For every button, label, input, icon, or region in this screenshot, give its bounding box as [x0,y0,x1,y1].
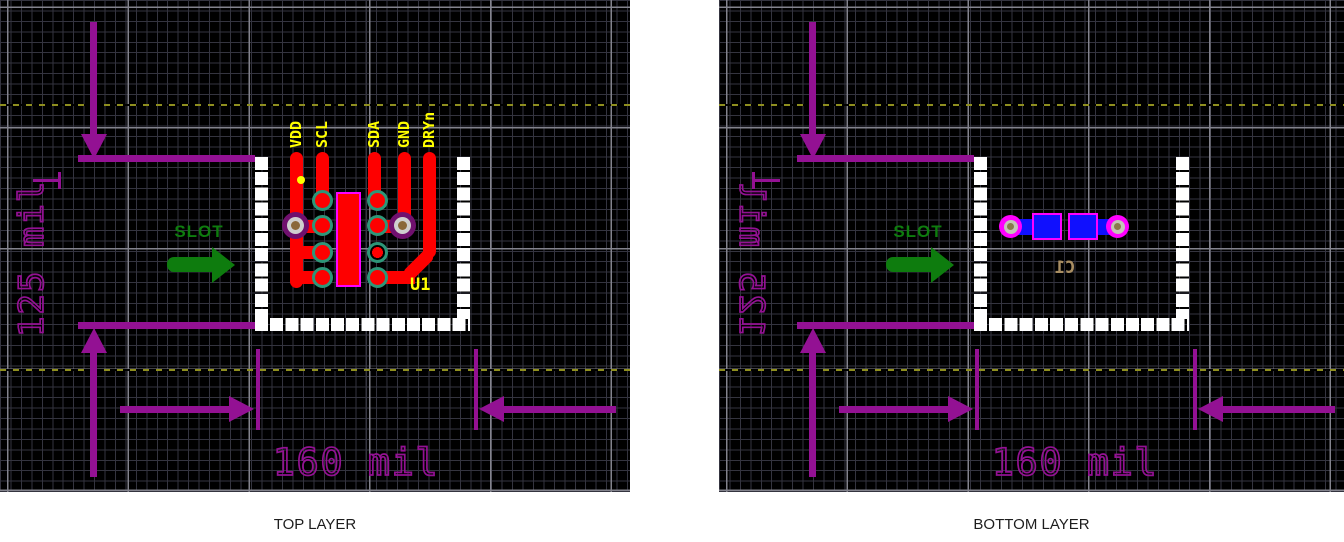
caption-bottom-layer: BOTTOM LAYER [719,516,1344,533]
slot-arrow-icon [931,247,954,283]
pad [312,215,333,236]
dimension-arrow-up-icon [800,328,826,353]
dimension-line [78,155,255,162]
slot-arrow-icon [212,247,235,283]
designator-u1: U1 [410,275,430,295]
pcb-slot-layout-figure: 125 mil 160 mil SLOT U1 VDD SCL SDA GND [0,0,1344,542]
designator-c1-mirrored: C1 [1049,258,1081,278]
slot-outline-left [974,157,987,319]
via [1106,215,1129,238]
panel-top-layer: 125 mil 160 mil SLOT U1 VDD SCL SDA GND [0,0,630,492]
pin-label-scl: SCL [311,92,333,148]
pin-label-sda: SDA [363,92,385,148]
dimension-line [90,22,97,134]
pad [312,242,333,263]
dimension-line [90,353,97,477]
slot-outline-left [255,157,268,319]
dimension-text-vertical-mirrored: 125 mil [733,172,769,337]
pin-label-dryn: DRYn [418,92,440,148]
dimension-text-horizontal: 160 mil [965,444,1185,481]
via [999,215,1022,238]
slot-label: SLOT [887,222,949,242]
pad [367,215,388,236]
pin-label-gnd: GND [393,92,415,148]
dimension-tick [58,172,61,189]
dimension-arrow-right-icon [229,396,254,422]
panel-bottom-layer: 125 mil 160 mil SLOT C1 [719,0,1344,492]
slot-arrow-icon [886,257,936,272]
dimension-line [504,406,616,413]
slot-outline-bottom [255,318,470,331]
caption-top-layer: TOP LAYER [0,516,630,533]
pin1-marker-icon [297,176,305,184]
dimension-line [78,322,255,329]
slot-outline-right [457,157,470,319]
thermal-pad [336,192,361,287]
pin-label-vdd: VDD [285,92,307,148]
dimension-line [797,322,974,329]
dimension-arrow-left-icon [479,396,504,422]
dimension-arrow-left-icon [1198,396,1223,422]
dimension-extension-line [256,349,260,430]
pad [312,190,333,211]
pad [367,242,388,263]
pad-bottom [1068,213,1098,240]
slot-outline-right [1176,157,1189,319]
via [282,212,309,239]
dimension-line [839,406,949,413]
slot-arrow-icon [167,257,217,272]
pad [312,267,333,288]
dimension-extension-line [975,349,979,430]
slot-outline-bottom [974,318,1189,331]
dimension-line [120,406,230,413]
dimension-arrow-up-icon [81,328,107,353]
pad-bottom [1032,213,1062,240]
via [389,212,416,239]
pad [367,267,388,288]
dimension-arrow-right-icon [948,396,973,422]
dimension-extension-line [1193,349,1197,430]
dimension-extension-line [474,349,478,430]
dimension-line [1223,406,1335,413]
trace-dryn [423,152,436,258]
slot-label: SLOT [168,222,230,242]
dimension-text-vertical: 125 mil [14,172,50,337]
dimension-line [809,22,816,134]
pad [367,190,388,211]
dimension-line [809,353,816,477]
dimension-line [797,155,974,162]
dimension-text-horizontal: 160 mil [246,444,466,481]
